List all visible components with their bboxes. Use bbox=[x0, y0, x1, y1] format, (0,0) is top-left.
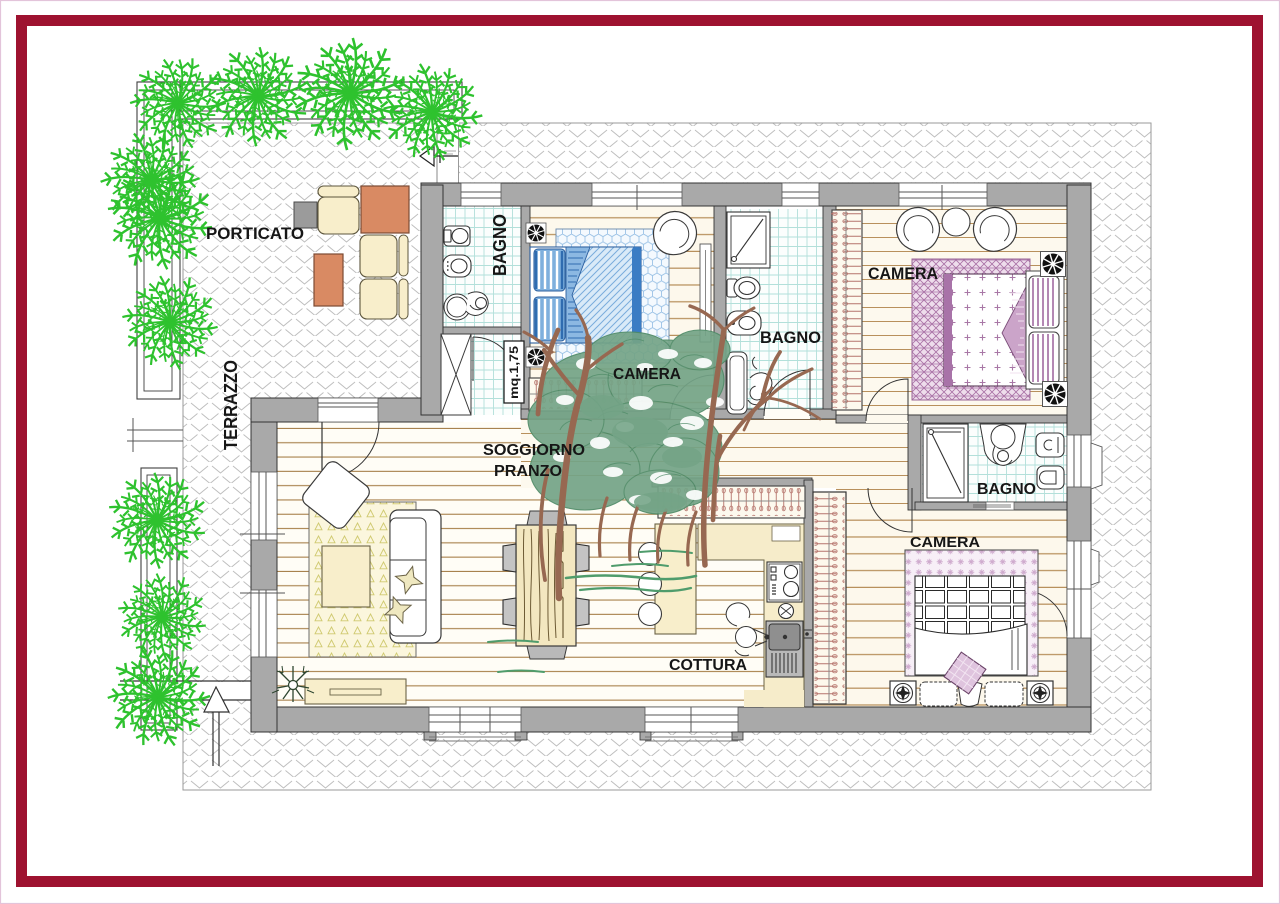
svg-text:CAMERA: CAMERA bbox=[868, 265, 938, 283]
svg-text:mq.1,75: mq.1,75 bbox=[509, 345, 521, 399]
svg-text:BAGNO: BAGNO bbox=[760, 328, 821, 347]
svg-text:BAGNO: BAGNO bbox=[977, 481, 1036, 498]
svg-text:CAMERA: CAMERA bbox=[910, 535, 981, 551]
svg-text:COTTURA: COTTURA bbox=[669, 657, 747, 674]
svg-text:SOGGIORNO: SOGGIORNO bbox=[483, 442, 585, 459]
svg-text:PORTICATO: PORTICATO bbox=[206, 224, 304, 243]
svg-text:PRANZO: PRANZO bbox=[494, 463, 562, 480]
svg-text:BAGNO: BAGNO bbox=[490, 214, 510, 276]
svg-text:CAMERA: CAMERA bbox=[613, 366, 681, 383]
svg-text:TERRAZZO: TERRAZZO bbox=[221, 360, 241, 450]
